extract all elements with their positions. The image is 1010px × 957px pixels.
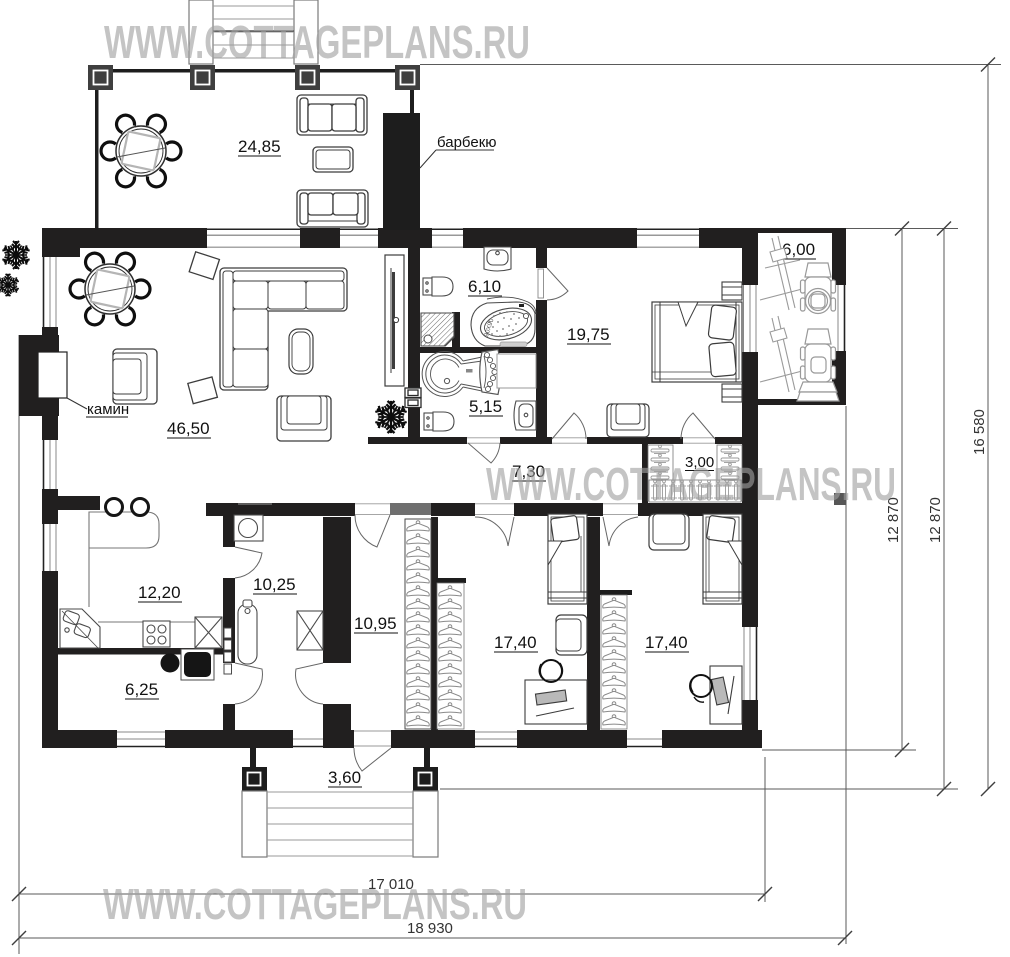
svg-text:10,25: 10,25 [253,575,296,594]
svg-text:19,75: 19,75 [567,325,610,344]
svg-text:камин: камин [87,401,129,418]
svg-text:WWW.COTTAGEPLANS.RU: WWW.COTTAGEPLANS.RU [104,16,530,68]
svg-text:46,50: 46,50 [167,419,210,438]
svg-text:барбекю: барбекю [437,134,497,151]
svg-text:24,85: 24,85 [238,137,281,156]
svg-text:10,95: 10,95 [354,614,397,633]
svg-text:17,40: 17,40 [645,633,688,652]
svg-text:12,20: 12,20 [138,583,181,602]
svg-text:6,25: 6,25 [125,680,158,699]
svg-text:3,60: 3,60 [328,768,361,787]
svg-text:16 580: 16 580 [971,409,988,455]
svg-text:6,10: 6,10 [468,277,501,296]
svg-text:12 870: 12 870 [927,497,944,543]
svg-text:WWW.COTTAGEPLANS.RU: WWW.COTTAGEPLANS.RU [103,880,527,929]
svg-text:5,15: 5,15 [469,397,502,416]
svg-text:17,40: 17,40 [494,633,537,652]
svg-text:WWW.COTTAGEPLANS.RU: WWW.COTTAGEPLANS.RU [486,458,896,510]
